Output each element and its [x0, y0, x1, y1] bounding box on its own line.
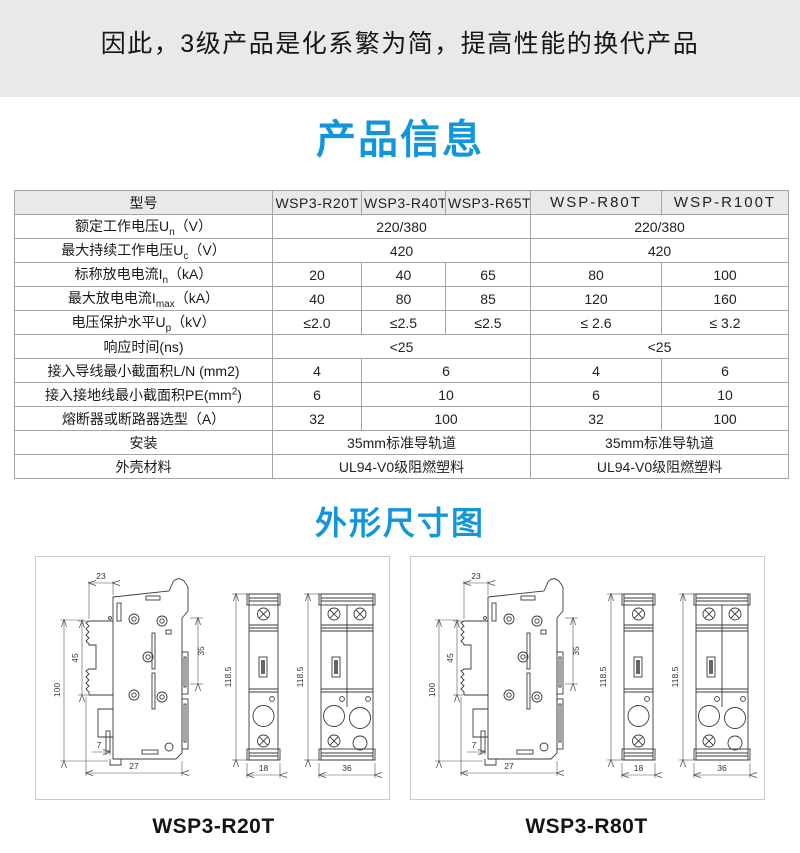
- dim-label-module-height: 118.5: [223, 666, 233, 687]
- dim-label-right-height: 35: [571, 646, 581, 656]
- spec-row: 熔断器或断路器选型（A） 32 100 32 100: [15, 407, 789, 431]
- spec-cell: 6: [273, 383, 362, 407]
- spec-row: 安装 35mm标准导轨道 35mm标准导轨道: [15, 431, 789, 455]
- spec-cell: ≤ 3.2: [662, 311, 789, 335]
- spec-row-label: 熔断器或断路器选型（A）: [15, 407, 273, 431]
- spec-row-label: 接入接地线最小截面积PE(mm2): [15, 383, 273, 407]
- spec-row-label: 电压保护水平Up（kV）: [15, 311, 273, 335]
- spec-row: 接入接地线最小截面积PE(mm2) 6 10 6 10: [15, 383, 789, 407]
- spec-cell: 120: [531, 287, 662, 311]
- dim-label-single-width: 18: [634, 763, 644, 773]
- spec-cell: 6: [362, 359, 531, 383]
- dim-label-bottom-width: 27: [129, 761, 139, 771]
- dimensions-title: 外形尺寸图: [0, 479, 800, 543]
- spec-row: 最大持续工作电压Uc（V） 420 420: [15, 239, 789, 263]
- spec-cell: 100: [662, 263, 789, 287]
- spec-cell: 80: [531, 263, 662, 287]
- dimension-panel-right: 23 45 100 35 7 27: [410, 556, 765, 800]
- front-view-single-module: [622, 594, 655, 760]
- spec-cell: 6: [662, 359, 789, 383]
- spec-header-row: 型号 WSP3-R20T WSP3-R40T WSP3-R65T WSP-R80…: [15, 191, 789, 215]
- spec-row-label: 接入导线最小截面积L/N (mm2): [15, 359, 273, 383]
- dim-label-top-width: 23: [471, 571, 481, 581]
- dim-label-module-height: 118.5: [670, 666, 680, 687]
- spec-cell: 10: [362, 383, 531, 407]
- model-name: WSP3-R20T: [273, 191, 362, 215]
- spec-cell: 40: [362, 263, 446, 287]
- dim-label-double-width: 36: [717, 763, 727, 773]
- spec-row-label: 标称放电电流In（kA）: [15, 263, 273, 287]
- spec-row: 额定工作电压Un（V） 220/380 220/380: [15, 215, 789, 239]
- dim-label-bottom-width: 27: [504, 761, 514, 771]
- front-view-single-dim-labels: 118.5 18: [223, 666, 268, 773]
- dimension-drawing: 23 45 100 35 7 27: [36, 557, 389, 799]
- side-view-drawing: [461, 579, 563, 765]
- top-banner: 因此，3级产品是化系繁为简，提高性能的换代产品: [0, 0, 800, 97]
- spec-cell: 420: [273, 239, 531, 263]
- spec-row: 响应时间(ns) <25 <25: [15, 335, 789, 359]
- product-info-title: 产品信息: [0, 97, 800, 162]
- spec-cell: 20: [273, 263, 362, 287]
- spec-cell: 160: [662, 287, 789, 311]
- model-label-left: WSP3-R20T: [37, 815, 390, 839]
- dim-label-bottom-notch: 7: [97, 740, 102, 750]
- spec-cell: UL94-V0级阻燃塑料: [273, 455, 531, 479]
- dim-label-total-height: 100: [427, 683, 437, 697]
- spec-cell: ≤2.5: [362, 311, 446, 335]
- spec-cell: ≤2.5: [446, 311, 531, 335]
- spec-row-label: 外壳材料: [15, 455, 273, 479]
- side-view-drawing: [86, 579, 188, 765]
- front-view-double-module: [694, 594, 750, 760]
- side-view-dim-labels: 23 45 100 35 7 27: [52, 571, 206, 771]
- spec-cell: 100: [662, 407, 789, 431]
- spec-cell: 35mm标准导轨道: [531, 431, 789, 455]
- dimension-drawing: 23 45 100 35 7 27: [411, 557, 764, 799]
- spec-cell: 32: [273, 407, 362, 431]
- spec-row-label: 安装: [15, 431, 273, 455]
- banner-text: 因此，3级产品是化系繁为简，提高性能的换代产品: [101, 24, 699, 74]
- spec-row: 标称放电电流In（kA） 20 40 65 80 100: [15, 263, 789, 287]
- dim-label-total-height: 100: [52, 683, 62, 697]
- spec-cell: UL94-V0级阻燃塑料: [531, 455, 789, 479]
- spec-cell: <25: [531, 335, 789, 359]
- spec-row: 电压保护水平Up（kV） ≤2.0 ≤2.5 ≤2.5 ≤ 2.6 ≤ 3.2: [15, 311, 789, 335]
- front-view-double-module: [319, 594, 375, 760]
- spec-row-label: 最大放电电流Imax（kA）: [15, 287, 273, 311]
- model-labels-row: WSP3-R20T WSP3-R80T: [0, 815, 800, 839]
- spec-row: 最大放电电流Imax（kA） 40 80 85 120 160: [15, 287, 789, 311]
- spec-cell: 85: [446, 287, 531, 311]
- spec-cell: ≤2.0: [273, 311, 362, 335]
- dim-label-right-height: 35: [196, 646, 206, 656]
- spec-cell: 80: [362, 287, 446, 311]
- dim-label-left-height: 45: [70, 653, 80, 663]
- spec-cell: 40: [273, 287, 362, 311]
- dim-label-module-height: 118.5: [295, 666, 305, 687]
- spec-table: 型号 WSP3-R20T WSP3-R40T WSP3-R65T WSP-R80…: [14, 190, 789, 479]
- dimension-panels: 23 45 100 35 7 27: [0, 556, 800, 800]
- spec-cell: 32: [531, 407, 662, 431]
- model-header-label: 型号: [15, 191, 273, 215]
- spec-cell: 220/380: [531, 215, 789, 239]
- spec-cell: 4: [273, 359, 362, 383]
- front-view-double-dimensions: [679, 594, 750, 778]
- spec-row: 外壳材料 UL94-V0级阻燃塑料 UL94-V0级阻燃塑料: [15, 455, 789, 479]
- spec-cell: 65: [446, 263, 531, 287]
- front-view-double-dimensions: [304, 594, 375, 778]
- model-name: WSP3-R65T: [446, 191, 531, 215]
- side-view-dimensions: [435, 581, 578, 776]
- dim-label-left-height: 45: [445, 653, 455, 663]
- spec-cell: 6: [531, 383, 662, 407]
- model-label-right: WSP3-R80T: [410, 815, 763, 839]
- model-name: WSP-R100T: [662, 191, 789, 215]
- front-view-single-dimensions: [607, 594, 655, 778]
- spec-row-label: 最大持续工作电压Uc（V）: [15, 239, 273, 263]
- spec-cell: 220/380: [273, 215, 531, 239]
- spec-row-label: 响应时间(ns): [15, 335, 273, 359]
- dim-label-top-width: 23: [96, 571, 106, 581]
- front-view-single-dim-labels: 118.5 18: [598, 666, 643, 773]
- side-view-dim-labels: 23 45 100 35 7 27: [427, 571, 581, 771]
- front-view-single-module: [247, 594, 280, 760]
- model-name: WSP3-R40T: [362, 191, 446, 215]
- spec-cell: 4: [531, 359, 662, 383]
- spec-row: 接入导线最小截面积L/N (mm2) 4 6 4 6: [15, 359, 789, 383]
- front-view-single-dimensions: [232, 594, 280, 778]
- spec-cell: <25: [273, 335, 531, 359]
- dim-label-bottom-notch: 7: [472, 740, 477, 750]
- dimension-panel-left: 23 45 100 35 7 27: [35, 556, 390, 800]
- dim-label-module-height: 118.5: [598, 666, 608, 687]
- dim-label-double-width: 36: [342, 763, 352, 773]
- spec-cell: 420: [531, 239, 789, 263]
- model-name: WSP-R80T: [531, 191, 662, 215]
- spec-row-label: 额定工作电压Un（V）: [15, 215, 273, 239]
- spec-cell: 100: [362, 407, 531, 431]
- spec-cell: ≤ 2.6: [531, 311, 662, 335]
- spec-cell: 10: [662, 383, 789, 407]
- spec-cell: 35mm标准导轨道: [273, 431, 531, 455]
- dim-label-single-width: 18: [259, 763, 269, 773]
